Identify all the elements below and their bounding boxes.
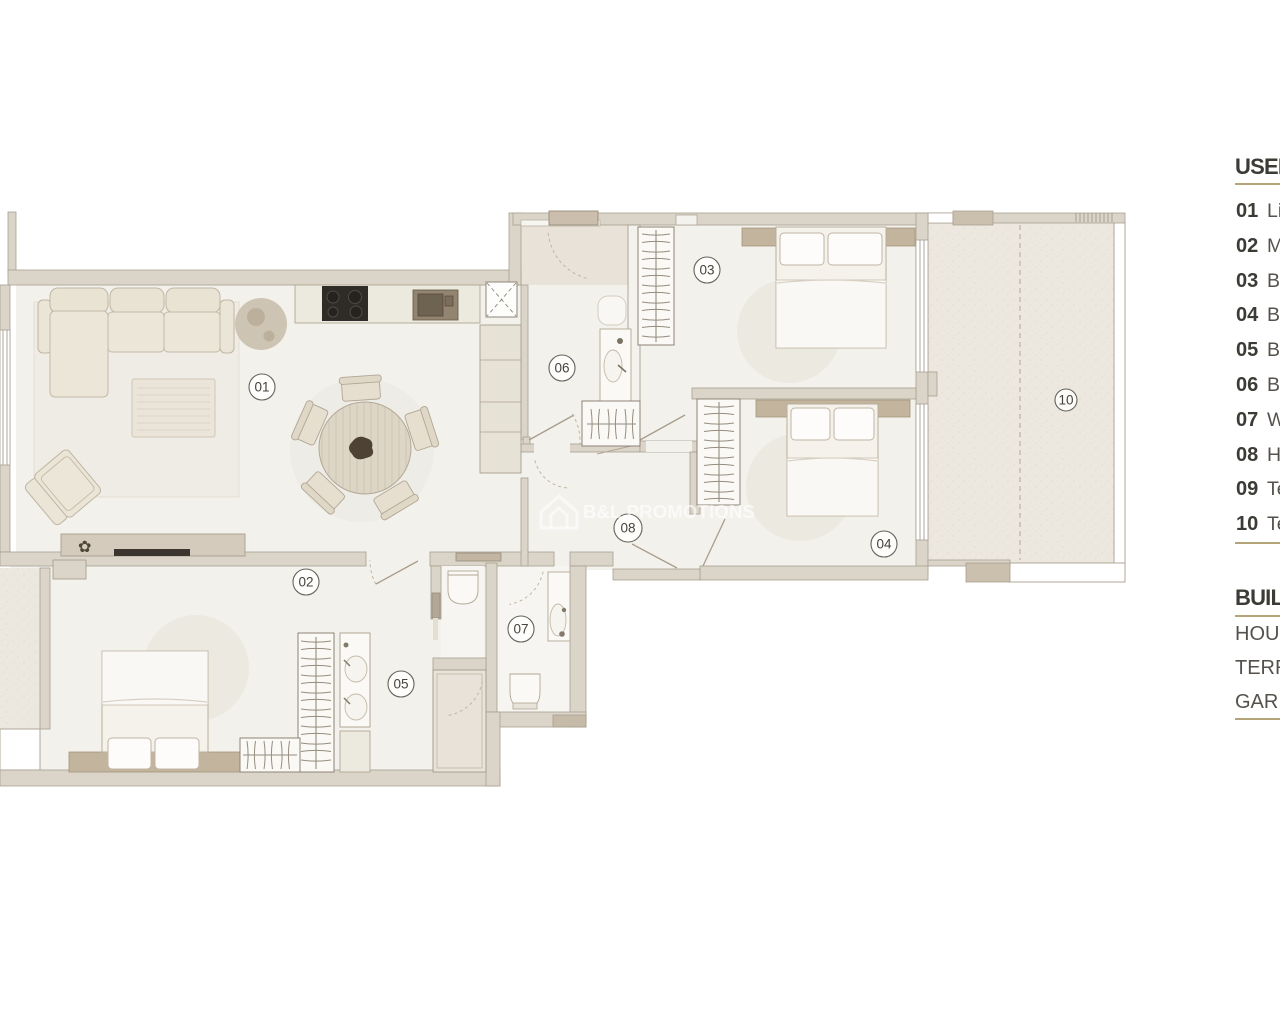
svg-text:TERRACE: TERRACE: [1235, 657, 1280, 679]
svg-text:✿: ✿: [78, 539, 91, 556]
svg-text:06: 06: [554, 361, 569, 376]
svg-text:02: 02: [298, 575, 313, 590]
svg-text:07: 07: [513, 622, 528, 637]
svg-text:10: 10: [1058, 393, 1073, 408]
svg-text:Terrace: Terrace: [1267, 478, 1280, 500]
svg-text:10: 10: [1236, 513, 1258, 535]
svg-text:05: 05: [1236, 339, 1258, 361]
svg-text:06: 06: [1236, 374, 1258, 396]
svg-text:B&L PROMOTIONS: B&L PROMOTIONS: [583, 501, 755, 522]
svg-text:Bedroom 2: Bedroom 2: [1267, 270, 1280, 292]
svg-text:03: 03: [1236, 270, 1258, 292]
svg-text:08: 08: [620, 521, 635, 536]
svg-text:Hall: Hall: [1267, 444, 1280, 466]
svg-text:BUILT SURFACE: BUILT SURFACE: [1235, 585, 1280, 610]
svg-text:07: 07: [1236, 409, 1258, 431]
svg-text:GARDEN: GARDEN: [1235, 691, 1280, 713]
svg-text:Master bedroom: Master bedroom: [1267, 235, 1280, 257]
svg-text:Bathroom 1: Bathroom 1: [1267, 339, 1280, 361]
svg-text:09: 09: [1236, 478, 1258, 500]
svg-text:01: 01: [1236, 200, 1258, 222]
svg-text:04: 04: [1236, 304, 1259, 326]
svg-text:01: 01: [254, 380, 269, 395]
svg-text:04: 04: [876, 537, 892, 552]
svg-text:05: 05: [393, 677, 408, 692]
svg-text:Terrace: Terrace: [1267, 513, 1280, 535]
svg-text:02: 02: [1236, 235, 1258, 257]
svg-text:Bathroom 2: Bathroom 2: [1267, 374, 1280, 396]
svg-text:03: 03: [699, 263, 714, 278]
svg-text:USEFUL SURFACE: USEFUL SURFACE: [1235, 154, 1280, 179]
svg-text:Living room: Living room: [1267, 200, 1280, 222]
svg-text:WC: WC: [1267, 409, 1280, 431]
svg-text:08: 08: [1236, 444, 1258, 466]
svg-text:HOUSE: HOUSE: [1235, 623, 1280, 645]
svg-text:Bedroom 3: Bedroom 3: [1267, 304, 1280, 326]
